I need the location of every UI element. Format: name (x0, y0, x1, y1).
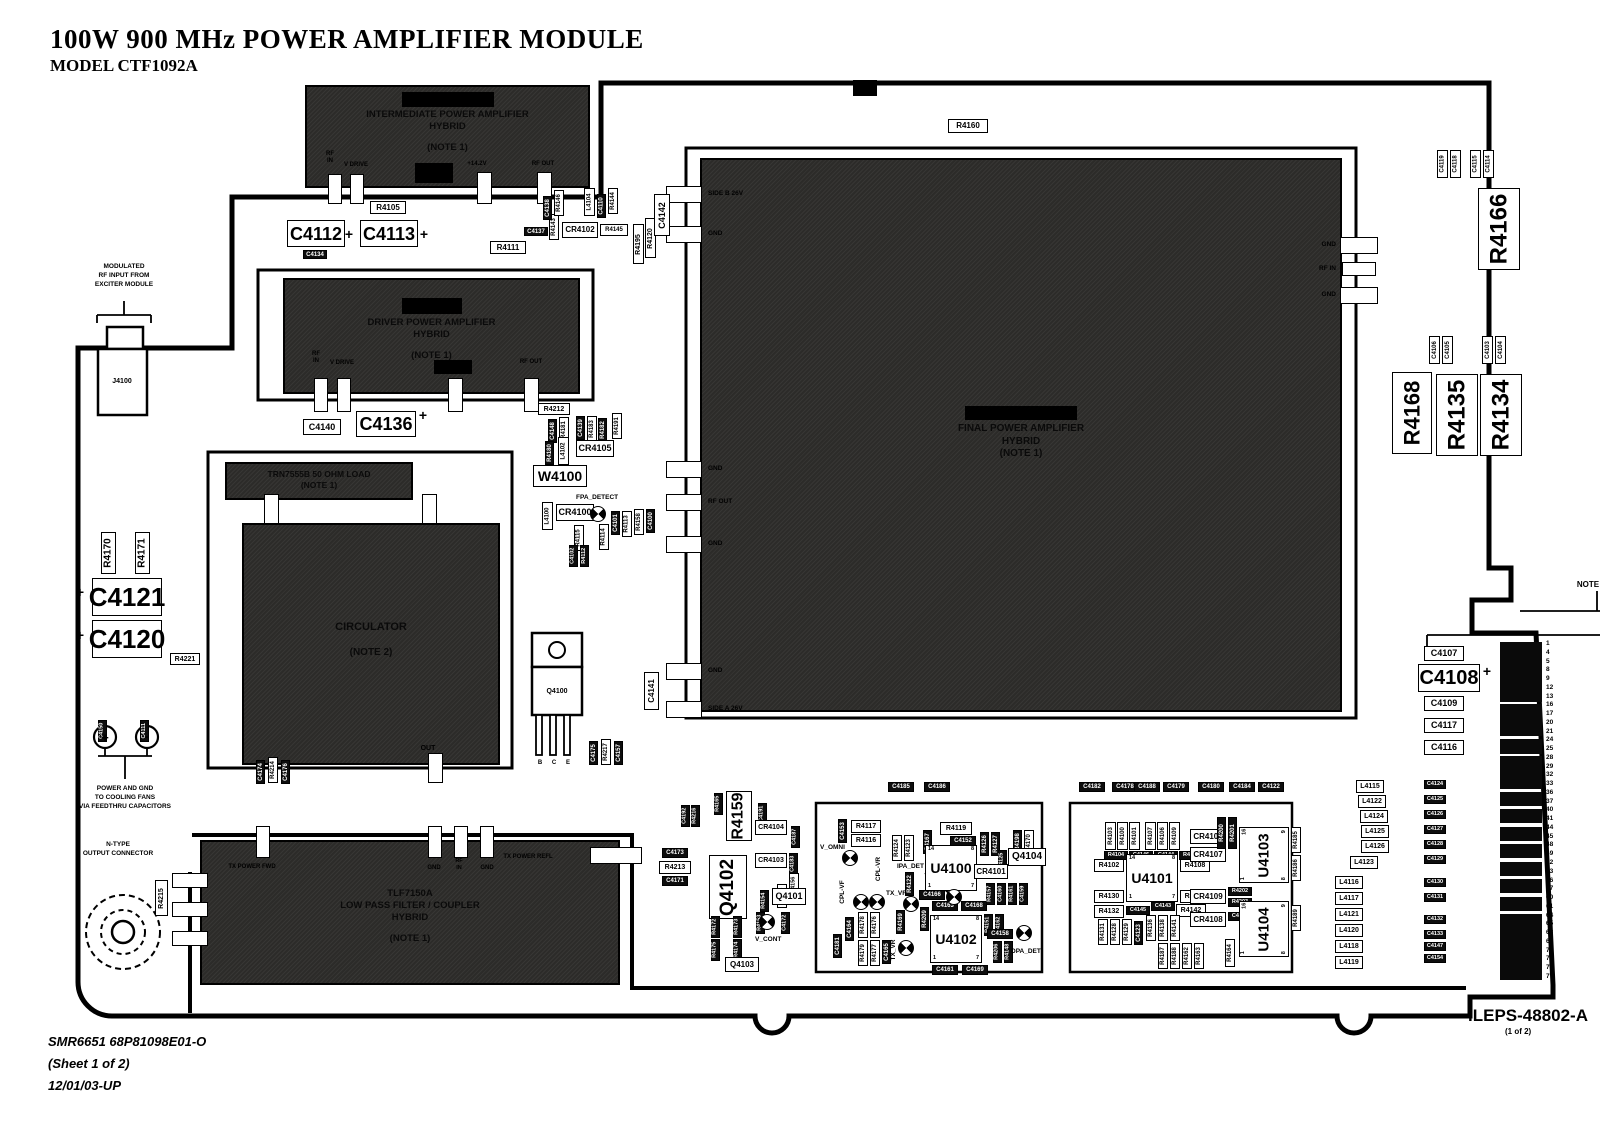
block-pin (172, 902, 208, 917)
component-r4134: R4134 (1480, 374, 1522, 456)
component-l4122: L4122 (1358, 795, 1386, 808)
component-r4162: R4162 (1182, 943, 1192, 969)
edge-connector-finger (1500, 642, 1542, 652)
block-pin (350, 174, 364, 204)
component-label: R4183 (589, 420, 595, 438)
component-r4202: R4202 (1228, 887, 1252, 896)
component-r4183: R4183 (587, 416, 597, 442)
component-r4206: R4206 (993, 941, 1002, 963)
component-label: C4182 (1083, 784, 1101, 790)
annotation-text: RF OUT (708, 499, 732, 506)
edge-connector-finger (1500, 704, 1542, 736)
block-pin (328, 174, 342, 204)
component-label: R4134 (1489, 380, 1513, 451)
component-label: R4146 (556, 194, 562, 212)
ic-pin-number: 7 (1172, 895, 1175, 901)
annotation-text: VIA FEEDTHRU CAPACITORS (79, 804, 171, 811)
component-label: R4104 (1108, 853, 1124, 859)
component-cr4101: CR4101 (974, 864, 1008, 879)
component-label: R4202 (1232, 889, 1248, 895)
annotation-text: TX POWER FWD (228, 864, 275, 870)
annotation-text: GND (708, 541, 722, 548)
component-label: R4182 (600, 421, 606, 439)
component-label: R4141 (1172, 919, 1178, 937)
component-label: R4132 (1099, 908, 1120, 915)
component-c4107: C4107 (1424, 646, 1464, 661)
component-c4153: C4153 (838, 819, 847, 843)
component-r4144: R4144 (608, 188, 618, 214)
ic-pin-number: 8 (976, 917, 979, 923)
component-label: C4172 (783, 915, 789, 931)
component-c4141: C4141 (644, 672, 659, 710)
edge-pin-number: 28 (1546, 755, 1553, 762)
ic-pin-number: 7 (976, 956, 979, 962)
annotation-text: RF IN (1319, 266, 1336, 273)
component-label: R4200 (1219, 824, 1225, 842)
component-r4160: R4160 (948, 119, 988, 133)
component-r4170: R4170 (101, 532, 116, 574)
component-r4146: R4146 (554, 190, 564, 216)
component-label: R4178 (860, 916, 866, 934)
component-label: L4104 (587, 193, 593, 210)
component-c4127: C4127 (1424, 825, 1446, 834)
component-label: L4117 (1339, 895, 1358, 902)
component-label: R4131 (1100, 923, 1106, 941)
component-c4130: C4130 (1424, 878, 1446, 887)
edge-pin-number: 41 (1546, 816, 1553, 823)
component-label: R4165 (716, 796, 722, 812)
pcb-layout-diagram: 100W 900 MHz POWER AMPLIFIER MODULE MODE… (0, 0, 1600, 1140)
component-label: C4148 (550, 422, 556, 440)
component-label: CR4104 (758, 824, 784, 831)
component-c4166: C4166 (919, 890, 945, 900)
component-l4126: L4126 (1361, 840, 1389, 853)
component-label: R4180 (547, 444, 553, 462)
sheet-number: (Sheet 1 of 2) (48, 1056, 130, 1071)
component-label: R4157 (988, 886, 994, 902)
block-pin (1342, 262, 1376, 276)
component-u4101: U410114817 (1126, 854, 1178, 902)
component-c4123: C4123 (1134, 921, 1143, 945)
component-label: R4215 (158, 888, 165, 909)
component-c4115: C4115 (1470, 150, 1481, 178)
component-label: R4113 (624, 515, 630, 532)
component-label: C4153 (840, 822, 846, 840)
component-r4214: R4214 (268, 757, 278, 783)
annotation-text: E (566, 760, 570, 766)
component-label: R4103 (1108, 827, 1114, 845)
component-label: R4107 (1148, 827, 1154, 845)
component-label: R4143 (551, 218, 557, 236)
annotation-text: + (101, 731, 109, 744)
component-label: C4185 (892, 784, 910, 790)
component-label: C4166 (923, 892, 941, 898)
component-label: R4169 (898, 913, 904, 931)
component-label: C4109 (1431, 699, 1458, 708)
component-label: CR4101 (976, 868, 1005, 876)
component-r4122: R4122 (905, 872, 914, 896)
annotation-text: RF (455, 859, 462, 865)
component-l4119: L4119 (1335, 956, 1363, 969)
component-label: R4195 (635, 234, 642, 255)
component-c4119: C4119 (1437, 150, 1448, 178)
component-label: U4104 (1256, 907, 1271, 951)
ic-pin-number: 9 (1282, 904, 1288, 907)
component-label: L4120 (1339, 927, 1359, 934)
edge-connector-finger (1500, 844, 1542, 858)
component-label: C4131 (1427, 895, 1443, 901)
component-label: R4130 (1099, 893, 1120, 900)
component-c4101: C4101 (611, 511, 620, 535)
component-r4176: R4176 (870, 912, 880, 938)
component-c4124: C4124 (1424, 780, 1446, 789)
component-label: L4100 (545, 507, 551, 524)
component-label: W4100 (538, 469, 582, 483)
block-pin (480, 826, 494, 858)
component-label: U4101 (1131, 871, 1172, 885)
component-l4123: L4123 (1350, 856, 1378, 869)
edge-connector-finger (1500, 809, 1542, 823)
component-label: R4170 (104, 538, 114, 567)
component-r4135: R4135 (1436, 374, 1478, 456)
component-r4195: R4195 (633, 224, 644, 264)
component-label: C4158 (991, 931, 1009, 937)
component-label: C4143 (1155, 904, 1171, 910)
edge-pin-number: 61 (1546, 904, 1553, 911)
component-label: C4110 (599, 197, 605, 214)
component-label: C4122 (1262, 784, 1280, 790)
component-r4165: R4165 (714, 793, 723, 815)
component-c4184: C4184 (1229, 782, 1255, 792)
component-r4106: R4106 (1157, 822, 1168, 850)
component-label: R4114 (601, 528, 607, 545)
board-notch (853, 80, 877, 96)
annotation-text: POWER AND GND (97, 786, 153, 793)
component-label: C4141 (648, 679, 656, 703)
annotation-text: C (552, 760, 556, 766)
testpoint-label: DPA_DET (1011, 949, 1041, 956)
component-label: R4174 (735, 942, 741, 958)
component-label: R4144 (610, 192, 616, 210)
component-r4141: R4141 (1170, 915, 1180, 941)
annotation-text: GND (427, 865, 440, 871)
block-pin (337, 378, 351, 412)
annotation-text: J4100 (112, 378, 131, 385)
ic-pin-number: 7 (971, 884, 974, 890)
component-c4164: C4164 (845, 917, 854, 941)
redacted-pin-label (434, 360, 472, 374)
component-r4126: R4126 (980, 832, 989, 856)
component-cr4105: CR4105 (576, 440, 614, 457)
component-label: C4174 (258, 763, 264, 781)
edge-connector-finger (1500, 862, 1542, 876)
edge-pin-number: 25 (1546, 746, 1553, 753)
component-r4217: R4217 (601, 739, 611, 765)
component-r4100: R4100 (1117, 822, 1128, 850)
component-label: R4129 (1124, 923, 1130, 941)
component-c4118: C4118 (1450, 150, 1461, 178)
testpoint-label: CPL-VF (840, 880, 847, 903)
component-label: C4112 (290, 225, 342, 243)
component-label: C4138 (545, 199, 551, 217)
component-label: CR4109 (1193, 893, 1222, 901)
component-r4154: R4154 (760, 890, 769, 912)
component-c4143: C4143 (1151, 902, 1175, 911)
component-label: R4158 (636, 513, 642, 531)
testpoint-cpl-vf (853, 894, 869, 910)
component-cr4107: CR4107 (1190, 847, 1226, 862)
component-label: C4168 (965, 903, 983, 909)
ic-pin-number: 1 (928, 884, 931, 890)
component-cr4103: CR4103 (755, 853, 787, 868)
testpoint-tx-vf (903, 896, 919, 912)
component-c4134: C4134 (303, 250, 327, 259)
component-label: R4126 (982, 835, 988, 853)
component-label: R4217 (603, 743, 609, 761)
edge-pin-number: 77 (1546, 974, 1553, 981)
component-c4181: C4181 (833, 934, 842, 958)
annotation-text: IN (456, 866, 462, 872)
component-label: C4107 (1431, 649, 1458, 658)
ic-pin-number: 1 (1241, 951, 1247, 954)
block-pin (172, 931, 208, 946)
component-label: R4138 (1160, 919, 1166, 937)
drawing-number: ILEPS-48802-A (1468, 1006, 1588, 1026)
component-label: C4100 (648, 512, 654, 530)
block-pin (666, 536, 702, 553)
edge-pin-number: 40 (1546, 807, 1553, 814)
component-c4180: C4180 (1198, 782, 1224, 792)
component-c4187: C4187 (791, 826, 800, 848)
component-r4116: R4116 (851, 834, 881, 847)
component-label: C4181 (835, 937, 841, 955)
edge-pin-number: 69 (1546, 939, 1553, 946)
component-label: C4120 (89, 626, 166, 652)
component-label: R4105 (376, 204, 400, 212)
component-label: R4128 (1112, 923, 1118, 941)
component-label: CR4107 (1193, 851, 1222, 859)
component-label: C4114 (1486, 155, 1492, 172)
component-r4161: R4161 (1008, 883, 1017, 905)
component-r4175: R4175 (711, 939, 720, 961)
edge-pin-number: 48 (1546, 842, 1553, 849)
component-label: C4119 (1440, 155, 1446, 172)
component-label: CR4102 (565, 226, 594, 234)
component-r4131: R4131 (1098, 919, 1108, 945)
annotation-text: RF OUT (532, 161, 554, 167)
edge-pin-number: 33 (1546, 781, 1553, 788)
component-label: L4119 (1339, 959, 1358, 966)
edge-pin-number: 9 (1546, 676, 1550, 683)
component-label: C4180 (1202, 784, 1220, 790)
component-label: R4164 (1227, 944, 1233, 962)
component-c4137: C4137 (524, 227, 548, 236)
component-label: R4172 (713, 919, 719, 935)
component-label: C4175 (591, 744, 597, 762)
component-label: R4101 (1132, 827, 1138, 845)
component-label: R4117 (856, 823, 876, 830)
edge-pin-number: 49 (1546, 851, 1553, 858)
component-label: R4176 (872, 916, 878, 934)
component-label: C4161 (936, 967, 954, 973)
component-c4136: C4136 (356, 411, 416, 437)
component-c4160: C4160 (997, 883, 1006, 905)
annotation-text: IN (327, 158, 333, 164)
component-c4109: C4109 (1424, 696, 1464, 711)
annotation-text: RF OUT (520, 359, 542, 365)
component-label: U4103 (1256, 833, 1271, 877)
edge-pin-number: 65 (1546, 921, 1553, 928)
component-c4131: C4131 (1424, 893, 1446, 902)
component-r4189: R4189 (1291, 905, 1301, 931)
edge-connector-finger (1500, 792, 1542, 806)
annotation-text: GND (708, 466, 722, 473)
block-pin (590, 847, 642, 864)
component-label: R4108 (1185, 862, 1206, 869)
component-c4113: C4113 (360, 220, 418, 247)
edge-pin-number: 21 (1546, 729, 1553, 736)
component-c4172: C4172 (781, 912, 790, 934)
component-label: C4147 (1427, 944, 1443, 950)
component-r4200: R4200 (1217, 817, 1226, 849)
edge-pin-number: 76 (1546, 965, 1553, 972)
component-q4103: Q4103 (725, 957, 759, 972)
component-label: R4106 (1160, 827, 1166, 845)
component-label: U4100 (930, 861, 971, 875)
component-r4180: R4180 (545, 441, 554, 465)
component-label: R4163 (1196, 947, 1202, 965)
component-q4104: Q4104 (1008, 848, 1046, 866)
component-label: R4162 (1184, 947, 1190, 965)
component-c4142: C4142 (654, 194, 670, 236)
component-c4154: C4154 (1424, 954, 1446, 963)
annotation-text: V DRIVE (344, 162, 368, 168)
board-outline (0, 0, 1600, 1140)
component-label: R4173 (735, 919, 741, 935)
component-r4130: R4130 (1094, 890, 1124, 903)
component-c4173: C4173 (662, 848, 688, 858)
component-label: R4145 (605, 227, 623, 233)
component-label: C4124 (1427, 782, 1443, 788)
component-l4104: L4104 (584, 188, 595, 216)
annotation-text: - (145, 729, 150, 744)
component-label: R4213 (665, 864, 686, 871)
component-r4124: R4124 (892, 835, 902, 861)
edge-pin-number: 13 (1546, 694, 1553, 701)
component-c4110: C4110 (597, 194, 606, 218)
ic-pin-number: 16 (1242, 903, 1248, 909)
component-label: C4115 (1473, 155, 1479, 172)
component-label: R4124 (894, 839, 900, 857)
component-label: R4160 (956, 122, 980, 130)
component-r4109: R4109 (1169, 822, 1180, 850)
component-label: C4136 (359, 415, 412, 433)
edge-connector-finger (1500, 914, 1542, 980)
annotation-text: MODULATED (103, 264, 144, 271)
block-pin (428, 753, 443, 783)
testpoint-label: TX_VF (886, 891, 906, 898)
component-r4173: R4173 (733, 916, 742, 938)
n-connector-outer-ring (86, 895, 160, 969)
component-r4187: R4187 (1158, 943, 1168, 969)
component-r4103: R4103 (1105, 822, 1116, 850)
component-l4124: L4124 (1360, 810, 1388, 823)
component-label: L4123 (1354, 859, 1374, 866)
component-c4161: C4161 (932, 965, 958, 975)
component-label: C4137 (527, 229, 545, 235)
component-r4129: R4129 (1122, 919, 1132, 945)
component-label: C4164 (847, 920, 853, 938)
component-label: L4116 (1339, 879, 1358, 886)
block-pin (256, 826, 270, 858)
component-label: C4117 (1431, 721, 1457, 730)
component-label: R4166 (1487, 194, 1511, 265)
edge-pin-number: 4 (1546, 650, 1550, 657)
component-label: R4188 (1172, 947, 1178, 965)
annotation-text: OUT (421, 745, 436, 752)
component-label: C4121 (89, 584, 166, 610)
component-c4168: C4168 (961, 901, 987, 911)
testpoint-cpl-vr (869, 894, 885, 910)
annotation-text: GND (1322, 292, 1336, 299)
component-c4122: C4122 (1258, 782, 1284, 792)
edge-connector-finger (1500, 756, 1542, 789)
component-c4105: C4105 (1442, 336, 1453, 364)
component-label: L4126 (1365, 843, 1385, 850)
component-label: R4120 (647, 228, 654, 249)
component-c4102: C4102 (569, 545, 578, 567)
component-label: R4214 (270, 761, 276, 779)
component-c4138: C4138 (543, 196, 552, 220)
component-c4133: C4133 (1424, 930, 1446, 939)
component-label: R4123 (906, 839, 912, 857)
edge-pin-number: 52 (1546, 860, 1553, 867)
component-c4169: C4169 (962, 965, 988, 975)
component-label: C4152 (954, 838, 972, 844)
component-label: C4128 (1427, 842, 1443, 848)
edge-connector-finger (1500, 897, 1542, 911)
block-pin (172, 873, 208, 888)
component-r4123: R4123 (904, 835, 914, 861)
component-c4121: C4121 (92, 578, 162, 616)
annotation-text: EXCITER MODULE (95, 282, 153, 289)
annotation-text: GND (708, 231, 722, 238)
component-label: R4212 (544, 406, 565, 413)
component-label: C4184 (1233, 784, 1251, 790)
component-r4158: R4158 (634, 509, 644, 535)
component-r4221: R4221 (170, 653, 200, 665)
plus-mark: + (76, 628, 84, 642)
edge-pin-number: 72 (1546, 948, 1553, 955)
block-pin (314, 378, 328, 412)
edge-connector-finger (1500, 739, 1542, 754)
edge-pin-number: 16 (1546, 702, 1553, 709)
component-label: C4142 (658, 202, 667, 229)
component-l4116: L4116 (1335, 876, 1363, 889)
component-c4179: C4179 (1163, 782, 1189, 792)
component-label: C4173 (666, 850, 684, 856)
component-label: C4154 (1427, 956, 1443, 962)
edge-connector-finger (1500, 827, 1542, 841)
component-r4114: R4114 (599, 524, 609, 550)
edge-pin-number: 36 (1546, 790, 1553, 797)
redacted-pin-label (415, 163, 453, 183)
component-label: C4132 (1427, 917, 1443, 923)
component-label: R4206 (995, 944, 1001, 960)
component-l4117: L4117 (1335, 892, 1363, 905)
component-c4106: C4106 (1429, 336, 1440, 364)
component-label: Q4102 (719, 858, 738, 915)
